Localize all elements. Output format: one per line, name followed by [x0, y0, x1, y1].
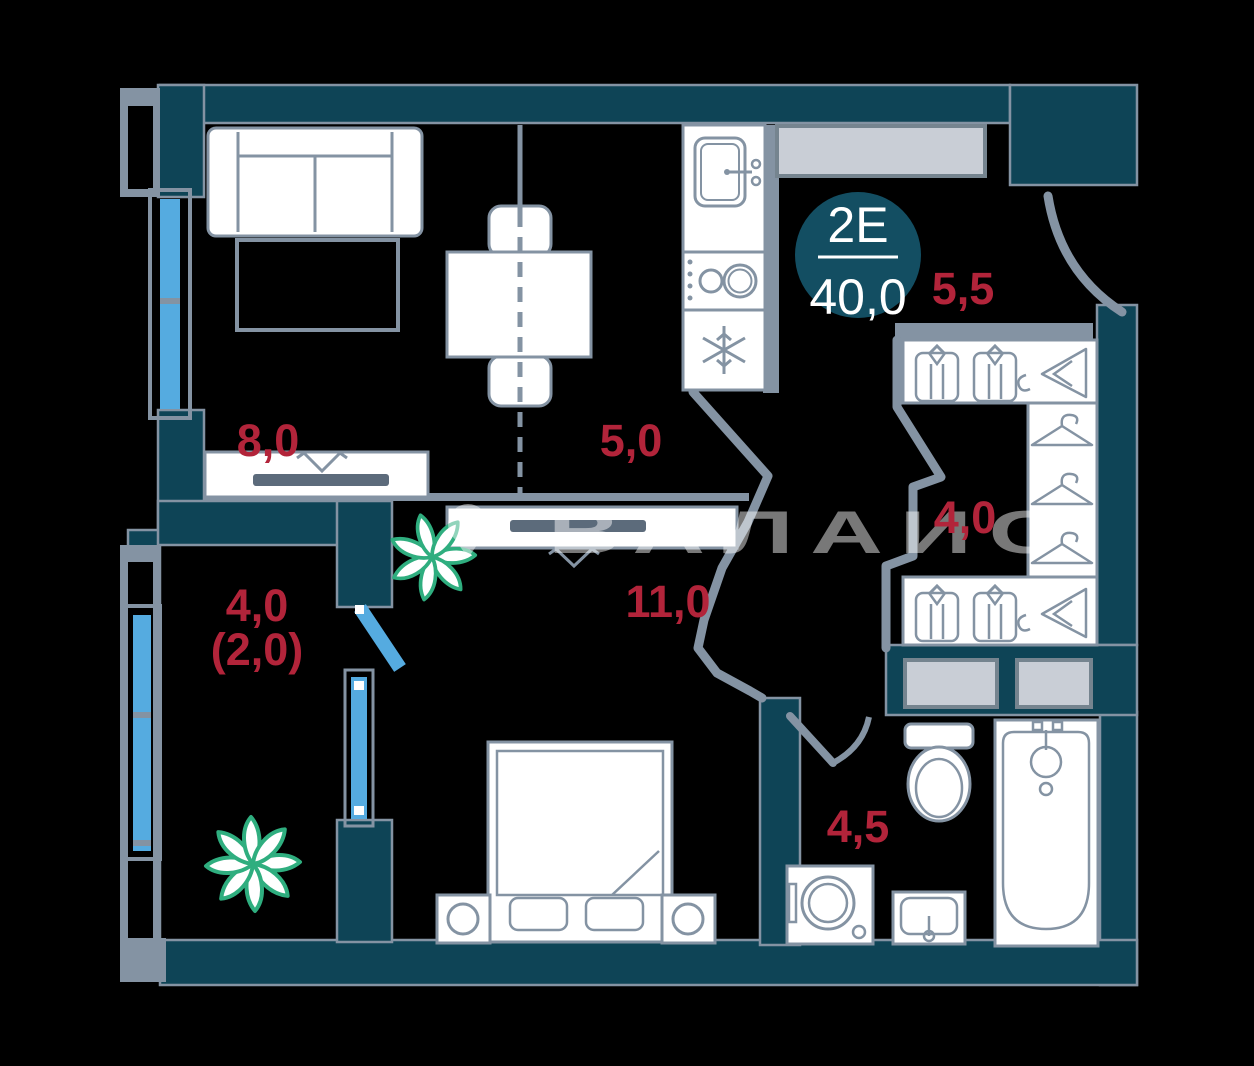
unit-badge: 2Е 40,0 — [795, 192, 921, 325]
label-kitchen: 5,0 — [600, 415, 663, 466]
label-balcony-coefficient: (2,0) — [211, 624, 304, 675]
coffee-table — [237, 240, 398, 330]
hall-cabinet — [905, 660, 997, 707]
watermark-text: ВАЛАИС — [548, 499, 1078, 566]
toilet-icon — [905, 724, 973, 821]
entrance-door-arc — [1048, 196, 1122, 312]
shirt-icon — [916, 586, 958, 641]
bathtub-icon — [995, 720, 1098, 946]
balcony-door — [355, 605, 400, 668]
nightstand-right — [662, 895, 715, 943]
shirt-icon — [974, 586, 1016, 641]
bedroom-balcony-window — [345, 670, 373, 826]
closet-top-band — [895, 323, 1093, 340]
wardrobe-unit — [903, 340, 1097, 645]
tv-icon — [253, 474, 389, 486]
bathroom-door-arc — [833, 717, 869, 763]
label-bathroom: 4,5 — [827, 801, 890, 852]
living-window — [150, 190, 190, 418]
label-wardrobe: 4,0 — [934, 492, 997, 543]
shirt-icon — [974, 346, 1016, 401]
label-living-room: 8,0 — [237, 415, 300, 466]
plant-icon — [206, 817, 300, 911]
hall-cabinet — [1017, 660, 1091, 707]
nightstand-left — [437, 895, 490, 943]
shirt-icon — [916, 346, 958, 401]
kitchen-column — [683, 125, 765, 390]
unit-type-code: 2Е — [827, 197, 888, 253]
label-main-room: 11,0 — [625, 576, 710, 627]
floor-plan-page: ВАЛАИС 8,0 5,0 11,0 4,0 (2,0) 5,5 4,0 4,… — [0, 0, 1254, 1066]
unit-total-area: 40,0 — [809, 269, 906, 325]
floor-plan-svg: ВАЛАИС 8,0 5,0 11,0 4,0 (2,0) 5,5 4,0 4,… — [0, 0, 1254, 1066]
label-entry-hall: 5,5 — [932, 263, 995, 314]
entry-cabinet — [777, 126, 985, 176]
bed — [488, 742, 672, 942]
pillow — [510, 898, 567, 930]
sofa — [208, 128, 422, 236]
bathroom-sink-icon — [893, 892, 965, 944]
pillow — [586, 898, 643, 930]
washing-machine — [787, 866, 873, 944]
